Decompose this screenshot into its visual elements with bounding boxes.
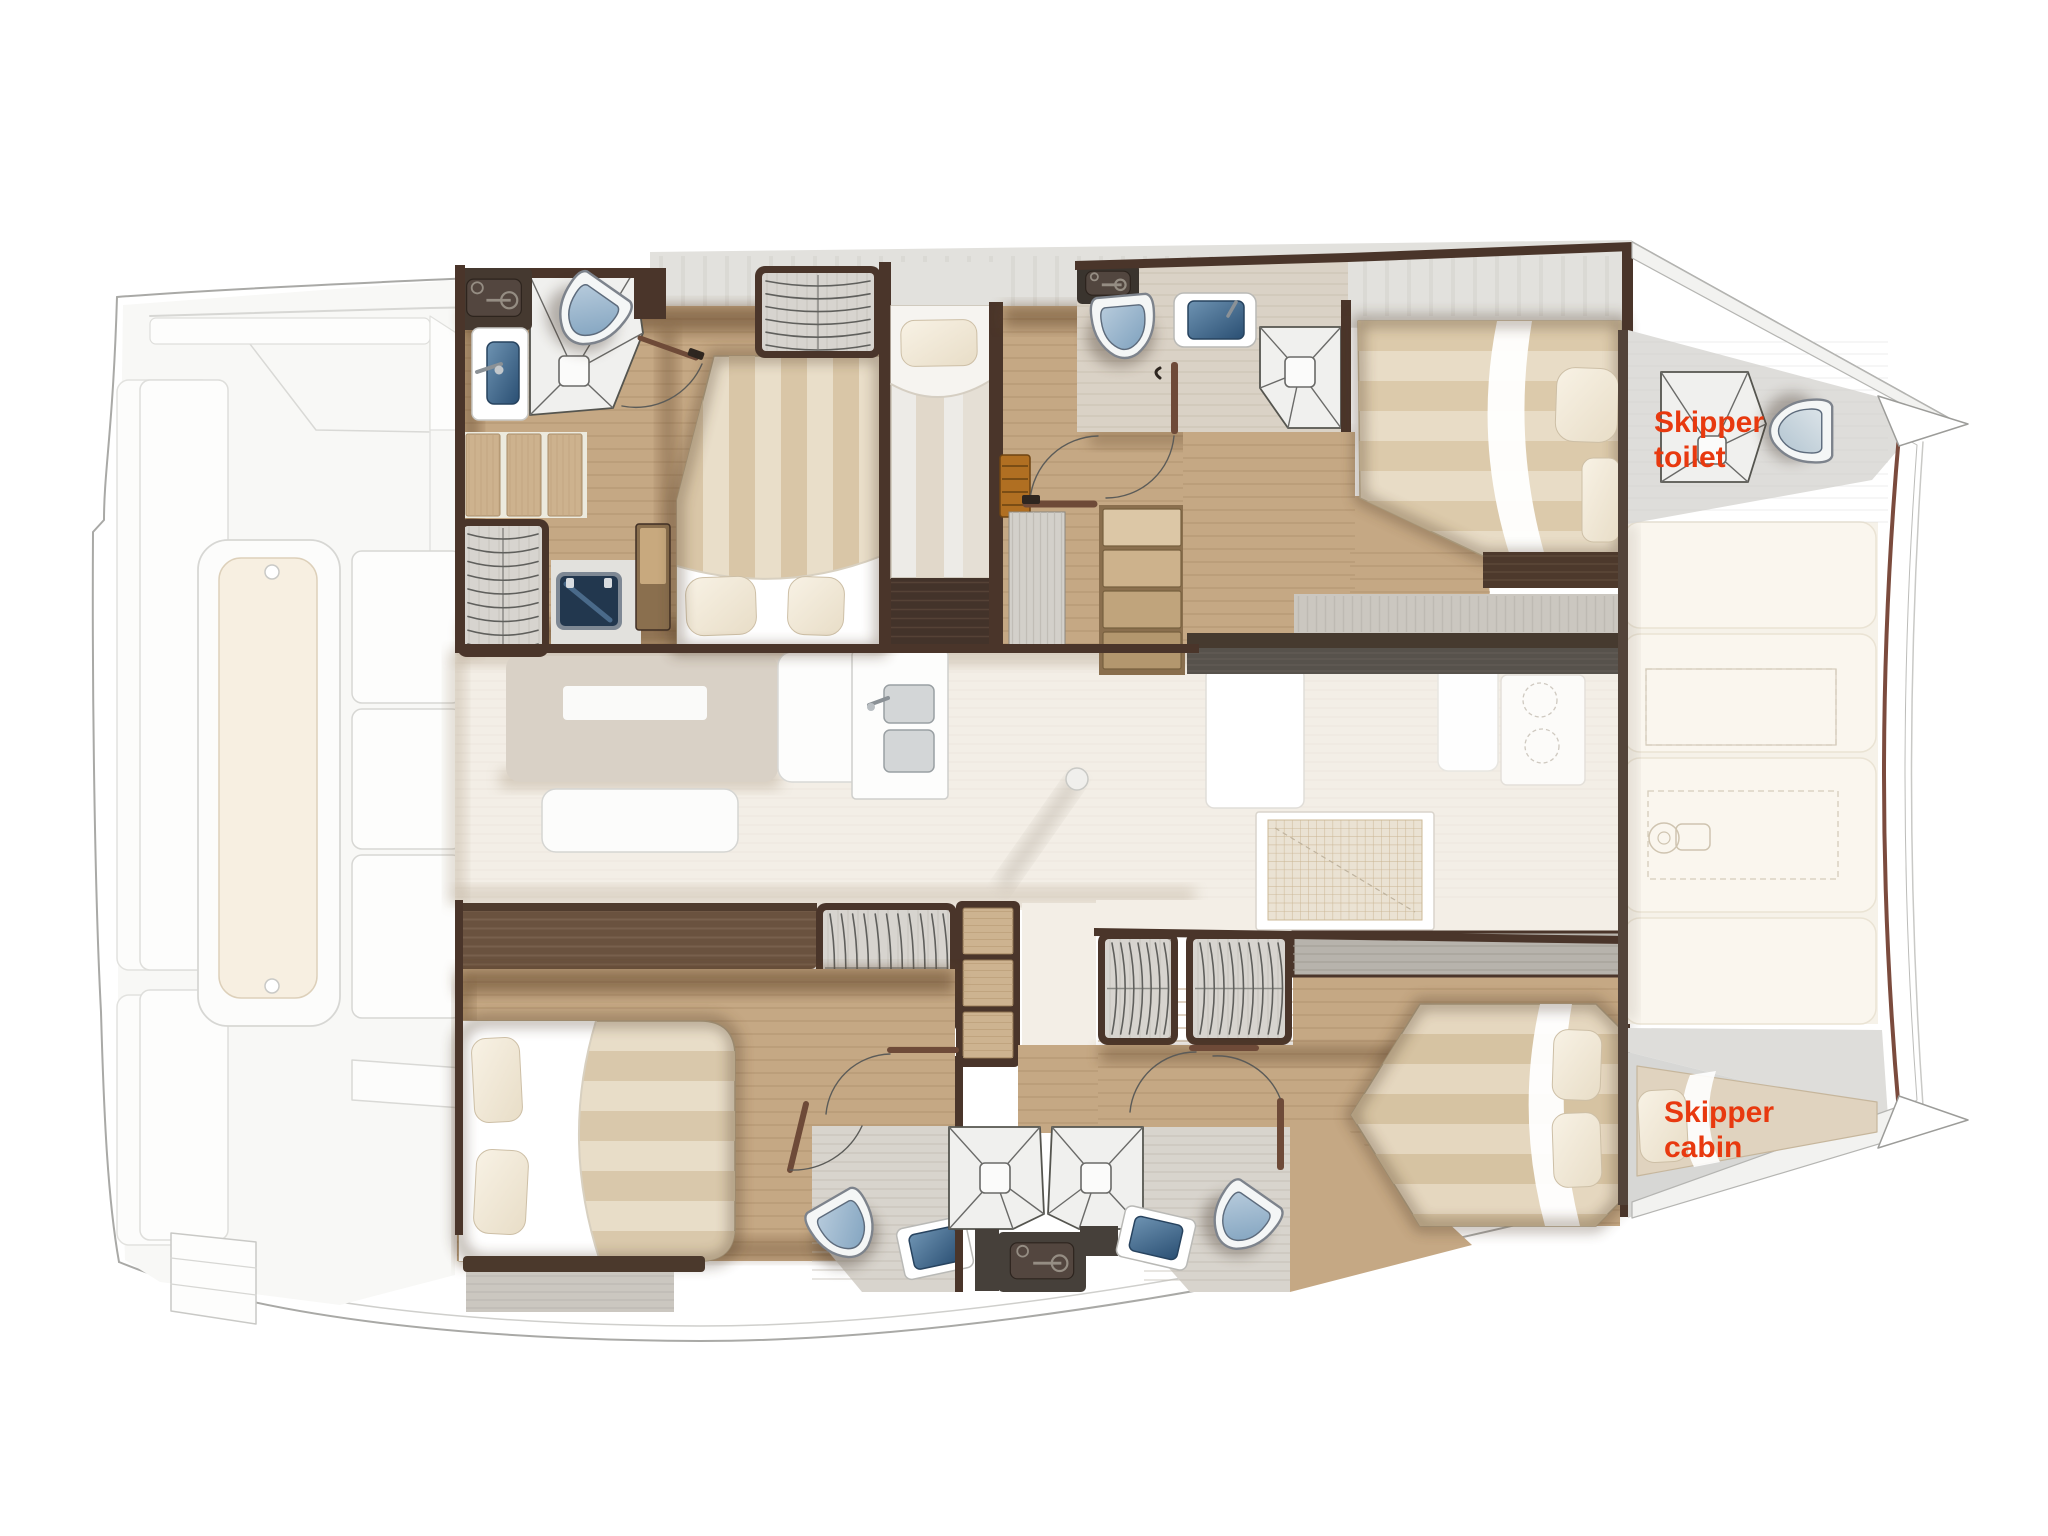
svg-text:toilet: toilet [1654,441,1726,474]
svg-text:Skipper: Skipper [1664,1096,1774,1129]
svg-text:Skipper: Skipper [1654,406,1764,439]
svg-text:cabin: cabin [1664,1131,1742,1164]
